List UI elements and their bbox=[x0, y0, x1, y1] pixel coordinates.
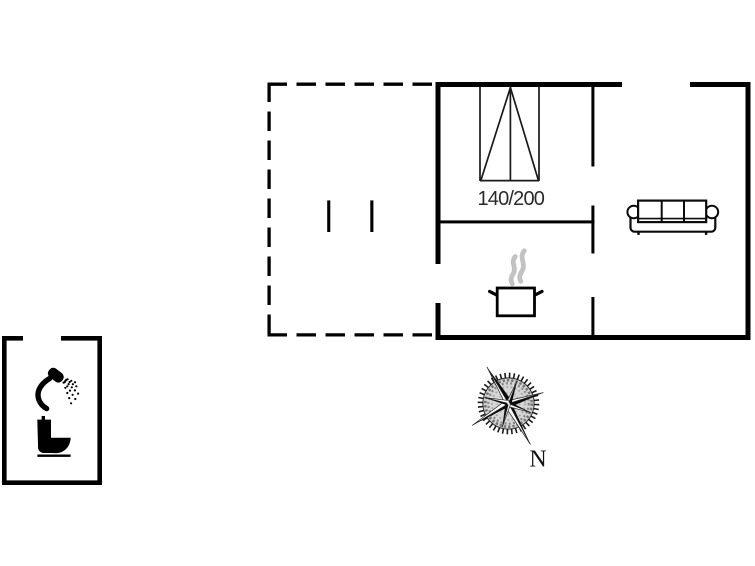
svg-text:N: N bbox=[529, 447, 546, 473]
svg-text:140/200: 140/200 bbox=[477, 188, 544, 210]
